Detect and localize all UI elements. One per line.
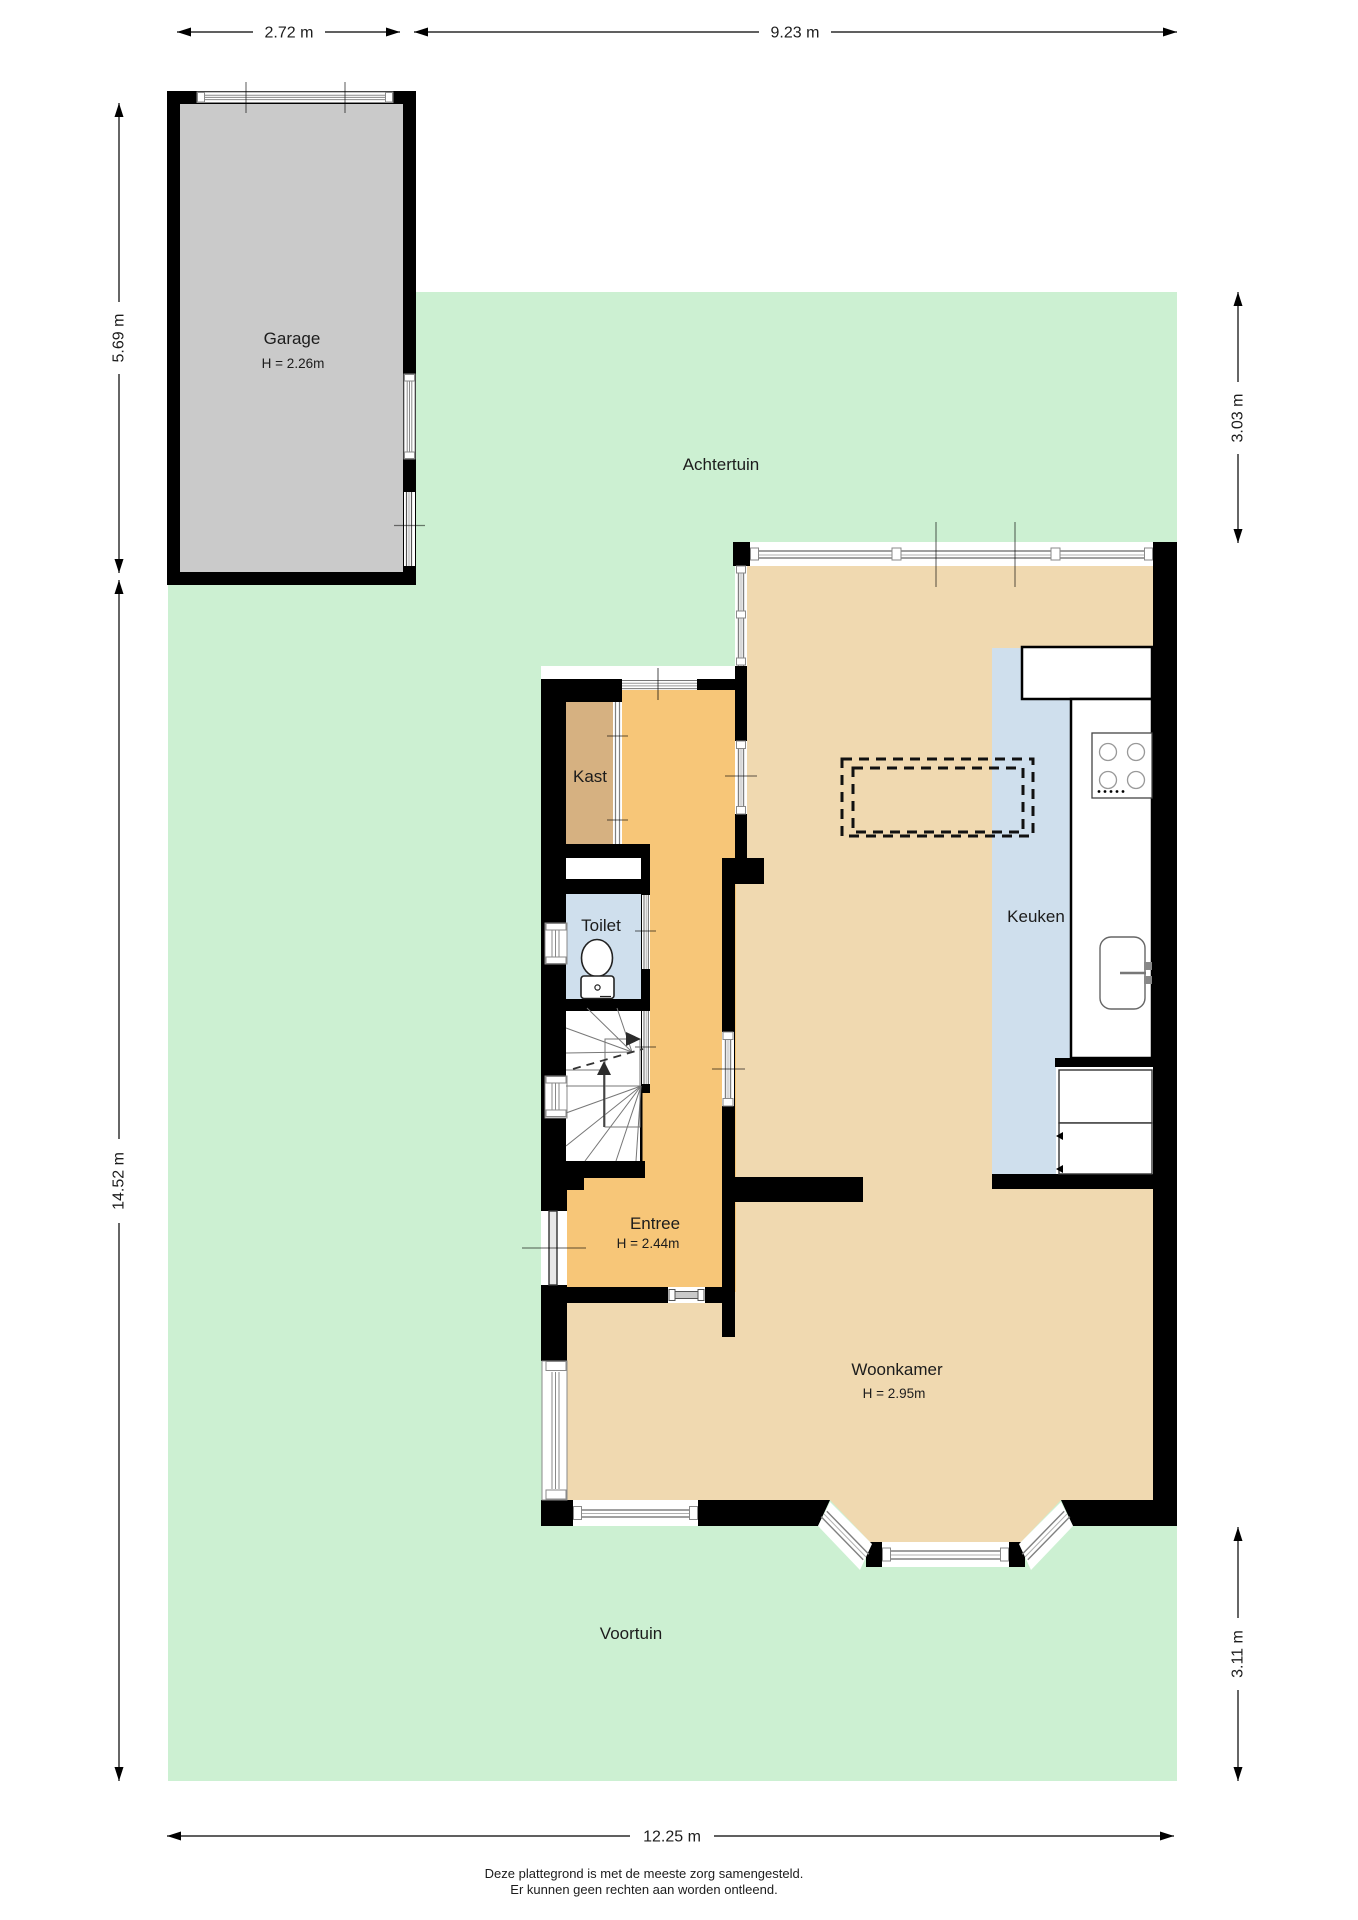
svg-text:14.52 m: 14.52 m	[111, 1152, 128, 1210]
svg-text:Deze plattegrond is met de mee: Deze plattegrond is met de meeste zorg s…	[485, 1866, 804, 1881]
svg-text:Achtertuin: Achtertuin	[683, 455, 760, 474]
svg-text:Kast: Kast	[573, 767, 607, 786]
svg-text:H = 2.95m: H = 2.95m	[863, 1386, 926, 1401]
svg-text:Keuken: Keuken	[1007, 907, 1065, 926]
svg-text:5.69 m: 5.69 m	[111, 314, 128, 363]
svg-text:3.03 m: 3.03 m	[1230, 394, 1247, 443]
svg-text:H = 2.44m: H = 2.44m	[617, 1236, 680, 1251]
svg-text:Er kunnen geen rechten aan wor: Er kunnen geen rechten aan worden ontlee…	[510, 1882, 777, 1897]
svg-text:Garage: Garage	[264, 329, 321, 348]
svg-text:3.11 m: 3.11 m	[1230, 1630, 1247, 1678]
svg-text:Voortuin: Voortuin	[600, 1624, 662, 1643]
svg-text:H = 2.26m: H = 2.26m	[262, 356, 325, 371]
svg-text:9.23 m: 9.23 m	[771, 25, 820, 42]
svg-text:12.25 m: 12.25 m	[643, 1829, 701, 1846]
svg-text:Woonkamer: Woonkamer	[851, 1360, 943, 1379]
svg-text:Toilet: Toilet	[581, 916, 621, 935]
svg-text:Entree: Entree	[630, 1214, 680, 1233]
svg-text:2.72 m: 2.72 m	[265, 25, 314, 42]
